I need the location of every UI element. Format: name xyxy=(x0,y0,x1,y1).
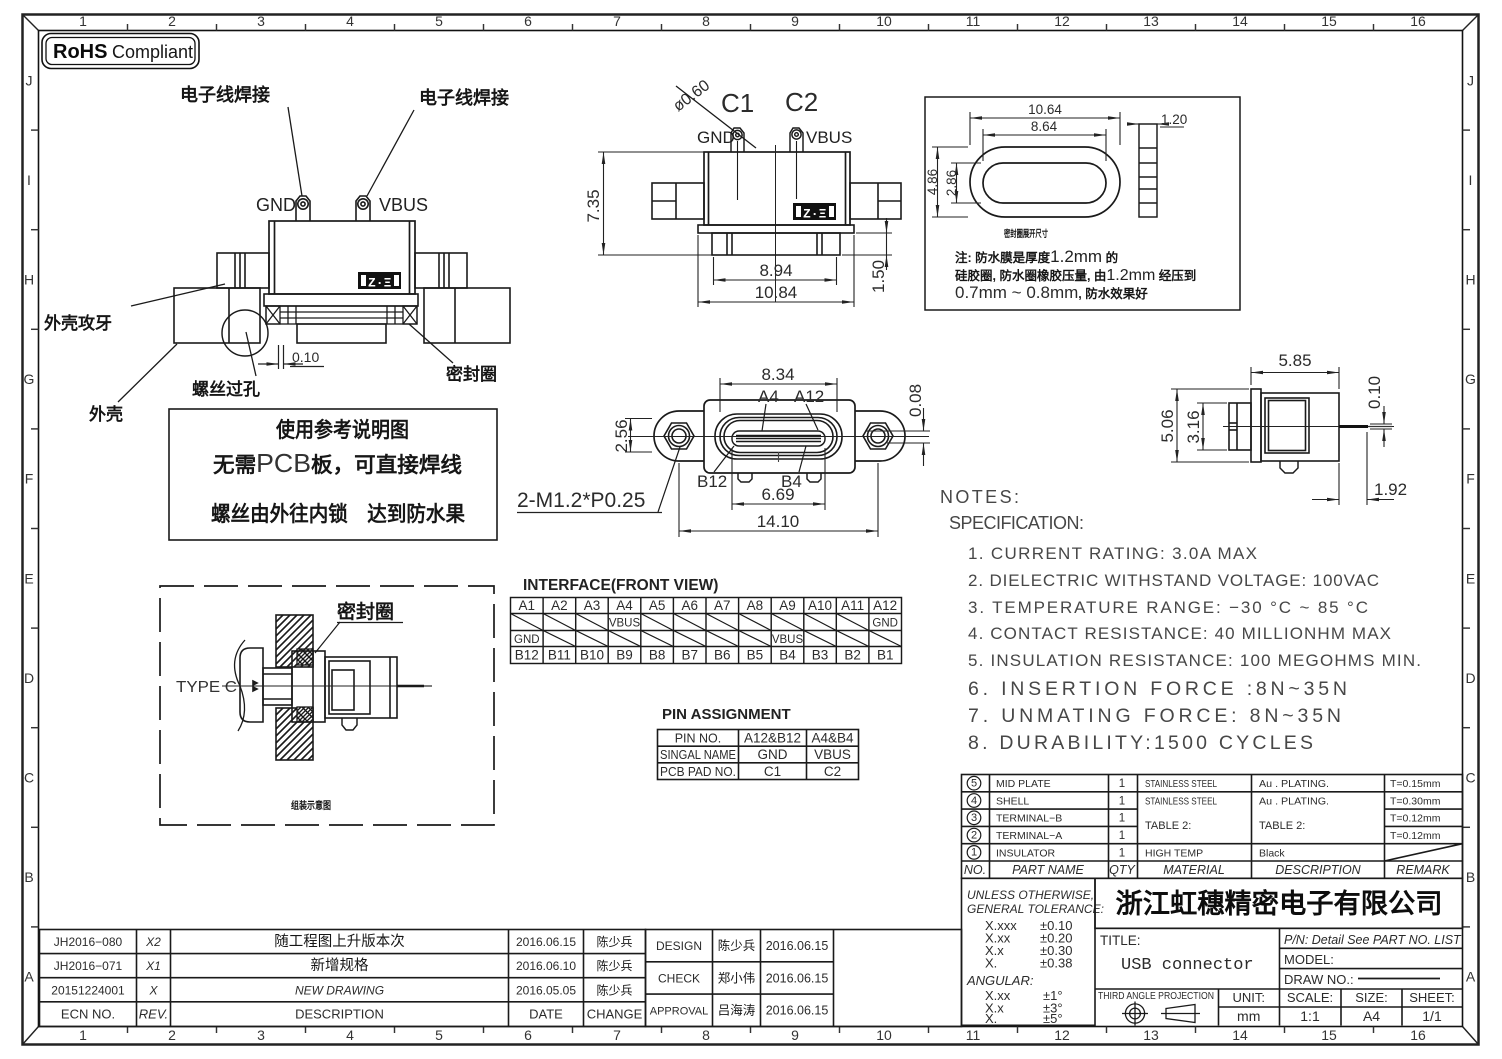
svg-text:PIN NO.: PIN NO. xyxy=(675,732,722,746)
svg-text:SHELL: SHELL xyxy=(996,795,1029,807)
svg-text:14: 14 xyxy=(1232,13,1248,29)
svg-text:HIGH TEMP: HIGH TEMP xyxy=(1145,847,1203,859)
svg-text:NOTES:: NOTES: xyxy=(940,487,1019,507)
svg-text:2016.06.15: 2016.06.15 xyxy=(766,939,829,953)
svg-text:14.10: 14.10 xyxy=(757,512,800,531)
svg-text:VBUS: VBUS xyxy=(379,195,428,215)
svg-text:P/N: Detail See PART NO. L: P/N: Detail See PART NO. LIST xyxy=(1284,933,1462,947)
svg-text:1: 1 xyxy=(79,1027,87,1043)
svg-text:16: 16 xyxy=(1410,1027,1426,1043)
svg-text:B12: B12 xyxy=(697,472,727,491)
svg-text:GND: GND xyxy=(256,195,296,215)
svg-text:6: 6 xyxy=(524,13,532,29)
svg-text:8.34: 8.34 xyxy=(761,365,794,384)
svg-text:Z·Ξ: Z·Ξ xyxy=(368,276,392,291)
svg-text:T=0.12mm: T=0.12mm xyxy=(1390,830,1441,842)
svg-text:INTERFACE(FRONT VIEW): INTERFACE(FRONT VIEW) xyxy=(523,577,718,594)
svg-text:J: J xyxy=(26,72,33,88)
svg-text:A8: A8 xyxy=(747,598,764,613)
svg-text:USB connector: USB connector xyxy=(1121,956,1254,975)
svg-text:9: 9 xyxy=(791,1027,799,1043)
svg-text:X2: X2 xyxy=(145,935,161,949)
svg-text:A11: A11 xyxy=(841,598,864,613)
svg-text:X.: X. xyxy=(985,1011,997,1026)
svg-text:B3: B3 xyxy=(812,648,829,663)
svg-text:5: 5 xyxy=(435,13,443,29)
svg-text:1.20: 1.20 xyxy=(1161,112,1187,127)
svg-text:螺丝由外往内锁 达到防水果: 螺丝由外往内锁 达到防水果 xyxy=(211,502,465,526)
svg-text:B9: B9 xyxy=(616,648,633,663)
svg-text:1: 1 xyxy=(79,13,87,29)
svg-text:C1: C1 xyxy=(764,764,781,779)
svg-text:11: 11 xyxy=(966,13,981,29)
svg-text:T=0.15mm: T=0.15mm xyxy=(1390,778,1441,790)
svg-text:QTY: QTY xyxy=(1109,863,1136,877)
svg-text:2016.06.15: 2016.06.15 xyxy=(766,971,829,985)
svg-text:5: 5 xyxy=(435,1027,443,1043)
svg-text:A4&B4: A4&B4 xyxy=(811,731,854,746)
svg-text:1: 1 xyxy=(1119,830,1125,842)
svg-text:G: G xyxy=(24,371,35,387)
svg-text:1. CURRENT RATING: 3.0A MA: 1. CURRENT RATING: 3.0A MAX xyxy=(968,544,1257,563)
svg-text:2. DIELECTRIC WITHSTAND VOL: 2. DIELECTRIC WITHSTAND VOLTAGE: 100VAC xyxy=(968,571,1379,590)
svg-text:G: G xyxy=(1465,371,1476,387)
svg-text:TITLE:: TITLE: xyxy=(1100,933,1141,948)
svg-text:SINGAL NAME: SINGAL NAME xyxy=(660,748,736,762)
svg-text:A4: A4 xyxy=(1363,1008,1380,1024)
svg-text:3.16: 3.16 xyxy=(1184,410,1203,443)
svg-text:郑小伟: 郑小伟 xyxy=(718,970,756,985)
svg-text:1:1: 1:1 xyxy=(1300,1008,1320,1024)
svg-text:X: X xyxy=(148,983,158,997)
svg-text:PART NAME: PART NAME xyxy=(1012,863,1084,877)
svg-text:C: C xyxy=(24,770,34,786)
svg-text:13: 13 xyxy=(1143,1027,1159,1043)
svg-text:6: 6 xyxy=(524,1027,532,1043)
svg-text:A12: A12 xyxy=(794,387,824,406)
svg-text:GND: GND xyxy=(872,618,898,630)
svg-text:B1: B1 xyxy=(877,648,894,663)
svg-text:密封圈: 密封圈 xyxy=(446,364,497,384)
svg-text:UNIT:: UNIT: xyxy=(1232,990,1265,1005)
svg-text:9: 9 xyxy=(791,13,799,29)
svg-text:3: 3 xyxy=(971,812,977,824)
svg-text:F: F xyxy=(25,471,34,487)
svg-text:DESIGN: DESIGN xyxy=(656,939,702,953)
svg-text:MODEL:: MODEL: xyxy=(1284,952,1334,967)
svg-text:PCB PAD NO.: PCB PAD NO. xyxy=(660,765,736,779)
svg-text:E: E xyxy=(24,570,33,586)
svg-text:2016.06.15: 2016.06.15 xyxy=(516,935,576,949)
svg-text:X.: X. xyxy=(985,956,997,971)
svg-text:A6: A6 xyxy=(681,598,698,613)
svg-text:H: H xyxy=(24,272,34,288)
svg-text:GND: GND xyxy=(758,747,788,762)
svg-text:JH2016−071: JH2016−071 xyxy=(54,959,123,973)
svg-text:2: 2 xyxy=(168,1027,176,1043)
svg-text:B6: B6 xyxy=(714,648,731,663)
svg-text:ECN NO.: ECN NO. xyxy=(61,1006,115,1021)
svg-text:陈少兵: 陈少兵 xyxy=(718,938,756,953)
svg-text:4: 4 xyxy=(346,1027,354,1043)
svg-text:1: 1 xyxy=(1119,778,1125,790)
svg-text:4: 4 xyxy=(346,13,354,29)
svg-text:陈少兵: 陈少兵 xyxy=(596,982,632,997)
svg-text:Au . PLATING.: Au . PLATING. xyxy=(1259,778,1329,790)
svg-text:C1: C1 xyxy=(721,88,754,118)
svg-text:电子线焊接: 电子线焊接 xyxy=(419,87,509,108)
svg-text:电子线焊接: 电子线焊接 xyxy=(180,84,270,105)
svg-text:I: I xyxy=(27,172,31,188)
svg-text:5.85: 5.85 xyxy=(1278,351,1311,370)
svg-text:8.94: 8.94 xyxy=(759,261,792,280)
svg-text:16: 16 xyxy=(1410,13,1426,29)
svg-text:13: 13 xyxy=(1143,13,1159,29)
svg-text:DESCRIPTION: DESCRIPTION xyxy=(295,1006,384,1021)
svg-text:浙江虹穗精密电子有限公司: 浙江虹穗精密电子有限公司 xyxy=(1116,888,1443,919)
svg-text:REMARK: REMARK xyxy=(1396,863,1450,877)
svg-text:7.35: 7.35 xyxy=(584,189,603,222)
svg-text:1: 1 xyxy=(1119,847,1125,859)
svg-text:B11: B11 xyxy=(548,648,571,663)
svg-text:15: 15 xyxy=(1321,1027,1337,1043)
svg-text:THIRD ANGLE PROJECTION: THIRD ANGLE PROJECTION xyxy=(1098,991,1214,1002)
svg-text:VBUS: VBUS xyxy=(814,747,851,762)
svg-text:2.56: 2.56 xyxy=(612,419,631,452)
svg-text:1/1: 1/1 xyxy=(1422,1008,1442,1024)
svg-text:H: H xyxy=(1465,272,1475,288)
svg-text:VBUS: VBUS xyxy=(806,128,852,147)
svg-text:6.69: 6.69 xyxy=(761,485,794,504)
svg-text:B7: B7 xyxy=(681,648,698,663)
svg-text:B10: B10 xyxy=(580,648,604,663)
svg-text:1: 1 xyxy=(971,847,977,859)
svg-text:1.50: 1.50 xyxy=(869,260,888,293)
svg-text:0.10: 0.10 xyxy=(292,349,319,365)
svg-text:0.08: 0.08 xyxy=(906,384,925,417)
svg-text:TABLE 2:: TABLE 2: xyxy=(1259,820,1305,832)
svg-text:4.86: 4.86 xyxy=(925,169,940,195)
svg-text:4. CONTACT RESISTANCE: 40: 4. CONTACT RESISTANCE: 40 MILLIONHM MAX xyxy=(968,624,1391,643)
svg-text:10.64: 10.64 xyxy=(1028,102,1062,117)
svg-text:±5°: ±5° xyxy=(1043,1011,1063,1026)
svg-text:T=0.12mm: T=0.12mm xyxy=(1390,813,1441,825)
svg-text:GND: GND xyxy=(697,128,735,147)
svg-text:A12&B12: A12&B12 xyxy=(744,731,801,746)
svg-text:8: 8 xyxy=(702,13,710,29)
svg-text:10: 10 xyxy=(876,1027,892,1043)
svg-text:20151224001: 20151224001 xyxy=(51,983,125,997)
svg-text:GENERAL TOLERANCE:: GENERAL TOLERANCE: xyxy=(967,902,1104,916)
svg-text:2.86: 2.86 xyxy=(944,170,959,196)
svg-text:INSULATOR: INSULATOR xyxy=(996,847,1056,859)
svg-text:ANGULAR:: ANGULAR: xyxy=(966,973,1034,988)
svg-text:A12: A12 xyxy=(873,598,897,613)
svg-text:A2: A2 xyxy=(551,598,568,613)
svg-text:RoHS: RoHS xyxy=(53,41,107,63)
svg-text:MID PLATE: MID PLATE xyxy=(996,778,1051,790)
svg-text:TERMINAL−A: TERMINAL−A xyxy=(996,830,1062,842)
svg-text:PIN ASSIGNMENT: PIN ASSIGNMENT xyxy=(662,706,791,723)
svg-text:MATERIAL: MATERIAL xyxy=(1163,863,1225,877)
svg-text:3. TEMPERATURE RANGE: −30 °: 3. TEMPERATURE RANGE: −30 °C ~ 85 °C xyxy=(968,598,1368,617)
svg-text:A7: A7 xyxy=(714,598,731,613)
svg-text:新增规格: 新增规格 xyxy=(311,957,369,974)
svg-text:C2: C2 xyxy=(824,764,841,779)
svg-text:2: 2 xyxy=(971,829,977,841)
svg-text:T=0.30mm: T=0.30mm xyxy=(1390,795,1441,807)
svg-text:DESCRIPTION: DESCRIPTION xyxy=(1275,863,1361,877)
svg-text:TABLE 2:: TABLE 2: xyxy=(1145,820,1191,832)
svg-text:B2: B2 xyxy=(844,648,861,663)
svg-text:NEW DRAWING: NEW DRAWING xyxy=(295,983,384,997)
svg-text:2016.05.05: 2016.05.05 xyxy=(516,983,576,997)
svg-text:14: 14 xyxy=(1232,1027,1248,1043)
svg-text:5.06: 5.06 xyxy=(1158,409,1177,442)
svg-text:随工程图上升版本次: 随工程图上升版本次 xyxy=(274,933,405,950)
svg-text:密封圈: 密封圈 xyxy=(337,600,394,623)
svg-text:UNLESS OTHERWISE,: UNLESS OTHERWISE, xyxy=(967,888,1094,902)
svg-text:X1: X1 xyxy=(145,959,161,973)
svg-text:Black: Black xyxy=(1259,847,1285,859)
svg-text:8: 8 xyxy=(702,1027,710,1043)
svg-text:2016.06.10: 2016.06.10 xyxy=(516,959,576,973)
svg-text:A4: A4 xyxy=(758,387,779,406)
svg-text:CHECK: CHECK xyxy=(658,971,700,985)
svg-text:F: F xyxy=(1466,471,1475,487)
svg-text:7. UNMATING FORCE: 8N~35: 7. UNMATING FORCE: 8N~35N xyxy=(968,705,1341,727)
svg-text:B: B xyxy=(24,869,33,885)
svg-text:A: A xyxy=(1466,969,1476,985)
svg-text:0.10: 0.10 xyxy=(1365,376,1384,409)
svg-text:外壳: 外壳 xyxy=(89,404,123,424)
svg-text:10.84: 10.84 xyxy=(755,283,798,302)
svg-text:D: D xyxy=(1465,670,1475,686)
svg-text:4: 4 xyxy=(971,795,977,807)
svg-text:10: 10 xyxy=(876,13,892,29)
svg-text:2-M1.2*P0.25: 2-M1.2*P0.25 xyxy=(517,489,645,512)
svg-text:DRAW NO.:: DRAW NO.: xyxy=(1284,972,1354,987)
svg-text:NO.: NO. xyxy=(964,863,986,877)
svg-text:STAINLESS STEEL: STAINLESS STEEL xyxy=(1145,778,1217,790)
svg-text:B12: B12 xyxy=(515,648,539,663)
svg-text:C: C xyxy=(1465,770,1475,786)
svg-text:陈少兵: 陈少兵 xyxy=(596,958,632,973)
svg-text:J: J xyxy=(1467,72,1474,88)
svg-text:硅胶圈, 防水圈橡胶压量, 由1.2mm 经压到: 硅胶圈, 防水圈橡胶压量, 由1.2mm 经压到 xyxy=(955,267,1196,284)
svg-text:SCALE:: SCALE: xyxy=(1287,990,1333,1005)
svg-text:REV.: REV. xyxy=(139,1006,168,1021)
svg-text:1: 1 xyxy=(1119,813,1125,825)
svg-text:外壳攻牙: 外壳攻牙 xyxy=(44,313,112,333)
svg-text:D: D xyxy=(24,670,34,686)
svg-text:B: B xyxy=(1466,869,1475,885)
svg-text:mm: mm xyxy=(1237,1008,1260,1024)
svg-text:A: A xyxy=(24,969,34,985)
svg-text:12: 12 xyxy=(1054,13,1070,29)
svg-text:吕海涛: 吕海涛 xyxy=(718,1003,756,1018)
svg-text:5: 5 xyxy=(971,778,977,790)
svg-text:A3: A3 xyxy=(584,598,601,613)
svg-text:I: I xyxy=(1469,172,1473,188)
svg-text:APPROVAL: APPROVAL xyxy=(650,1006,709,1018)
svg-text:B4: B4 xyxy=(779,648,796,663)
svg-text:CHANGE: CHANGE xyxy=(587,1006,643,1021)
svg-text:5. INSULATION RESISTANCE: 1: 5. INSULATION RESISTANCE: 100 MEGOHMS MI… xyxy=(968,651,1421,670)
svg-text:11: 11 xyxy=(966,1027,981,1043)
svg-text:使用参考说明图: 使用参考说明图 xyxy=(275,418,409,442)
svg-text:SHEET:: SHEET: xyxy=(1409,990,1455,1005)
svg-text:3: 3 xyxy=(257,1027,265,1043)
svg-text:12: 12 xyxy=(1054,1027,1070,1043)
svg-text:Z·Ξ: Z·Ξ xyxy=(803,207,827,222)
svg-text:2016.06.15: 2016.06.15 xyxy=(766,1004,829,1018)
svg-text:STAINLESS STEEL: STAINLESS STEEL xyxy=(1145,795,1217,807)
svg-text:A4: A4 xyxy=(616,598,633,613)
svg-text:B8: B8 xyxy=(649,648,666,663)
svg-text:1: 1 xyxy=(1119,795,1125,807)
svg-text:8.64: 8.64 xyxy=(1031,119,1058,134)
svg-text:Au . PLATING.: Au . PLATING. xyxy=(1259,795,1329,807)
svg-text:SPECIFICATION:: SPECIFICATION: xyxy=(949,513,1084,533)
svg-text:8. DURABILITY:1500 CYCLES: 8. DURABILITY:1500 CYCLES xyxy=(968,732,1313,754)
svg-text:Compliant: Compliant xyxy=(112,42,193,62)
svg-text:TERMINAL−B: TERMINAL−B xyxy=(996,813,1062,825)
svg-text:陈少兵: 陈少兵 xyxy=(596,934,632,949)
svg-text:组装示意图: 组装示意图 xyxy=(291,799,331,812)
svg-text:B5: B5 xyxy=(747,648,764,663)
svg-text:2: 2 xyxy=(168,13,176,29)
svg-text:7: 7 xyxy=(613,13,621,29)
svg-text:VBUS: VBUS xyxy=(609,618,641,630)
svg-text:A10: A10 xyxy=(808,598,832,613)
svg-text:15: 15 xyxy=(1321,13,1337,29)
svg-text:VBUS: VBUS xyxy=(772,634,804,646)
svg-text:C2: C2 xyxy=(785,87,818,117)
svg-text:A9: A9 xyxy=(779,598,796,613)
svg-text:GND: GND xyxy=(514,634,540,646)
svg-text:螺丝过孔: 螺丝过孔 xyxy=(192,379,260,399)
svg-text:JH2016−080: JH2016−080 xyxy=(54,935,123,949)
svg-text:A5: A5 xyxy=(649,598,666,613)
svg-text:±0.38: ±0.38 xyxy=(1040,956,1072,971)
svg-text:7: 7 xyxy=(613,1027,621,1043)
svg-text:密封圈展开尺寸: 密封圈展开尺寸 xyxy=(1003,228,1048,240)
svg-text:A1: A1 xyxy=(519,598,536,613)
svg-text:SIZE:: SIZE: xyxy=(1355,990,1388,1005)
svg-text:E: E xyxy=(1466,570,1475,586)
svg-text:1.92: 1.92 xyxy=(1374,480,1407,499)
svg-text:3: 3 xyxy=(257,13,265,29)
svg-text:DATE: DATE xyxy=(529,1006,563,1021)
svg-text:TYPE C: TYPE C xyxy=(176,679,237,696)
